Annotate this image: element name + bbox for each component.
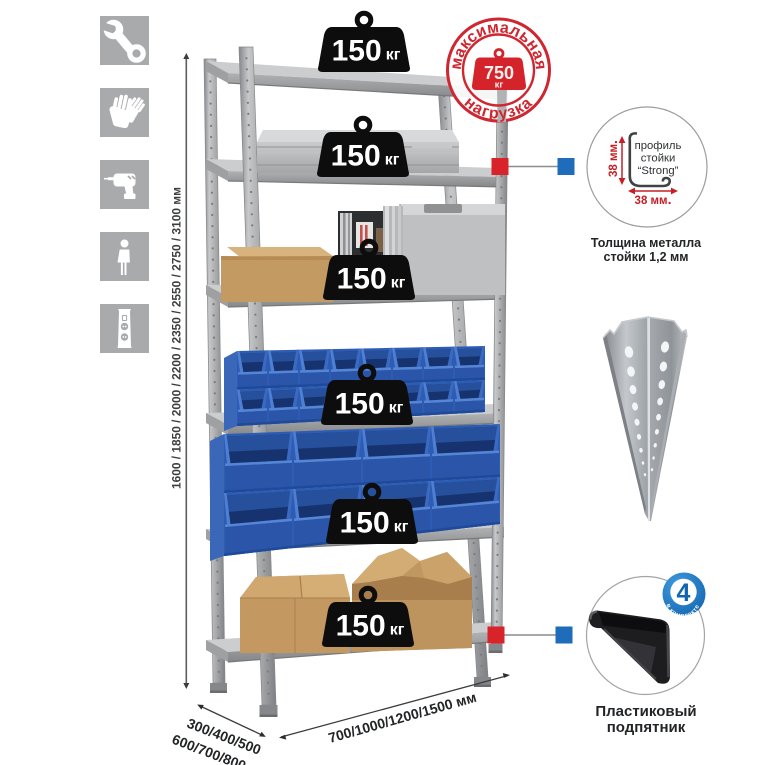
svg-text:“Strong”: “Strong” xyxy=(638,165,679,177)
svg-text:стойки: стойки xyxy=(641,153,676,165)
svg-text:подпятник: подпятник xyxy=(607,719,686,736)
svg-text:1600 / 1850 / 2000 / 2200 / 23: 1600 / 1850 / 2000 / 2200 / 2350 / 2550 … xyxy=(170,187,184,489)
svg-text:кг: кг xyxy=(495,80,504,91)
svg-text:Толщина металла: Толщина металла xyxy=(591,236,702,250)
svg-text:Пластиковый: Пластиковый xyxy=(595,703,696,720)
svg-text:4: 4 xyxy=(677,579,691,607)
svg-text:профиль: профиль xyxy=(635,140,682,152)
svg-text:стойки 1,2 мм: стойки 1,2 мм xyxy=(604,250,689,264)
